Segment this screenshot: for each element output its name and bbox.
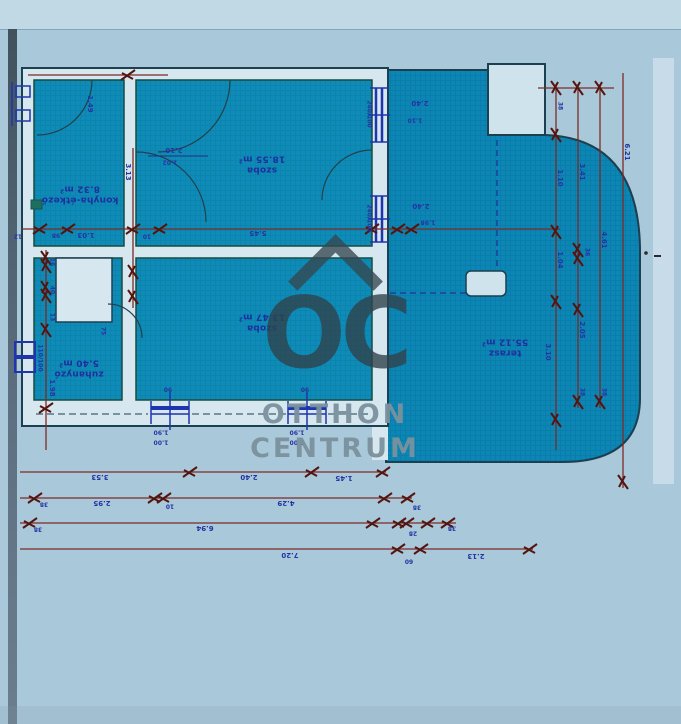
dimension-label: 4.61 (600, 231, 608, 248)
dimension-label: 2.40 (412, 202, 429, 210)
dimension-label: 1.00 (154, 439, 169, 446)
room-label-konyha-etkezo: konyha-étkező8.32 m² (42, 182, 119, 205)
dimension-label: 1.04 (556, 251, 564, 268)
dimension-label: 38 (601, 388, 608, 396)
dimension-label: 38 (413, 504, 421, 511)
dimension-label: 38 (579, 388, 586, 396)
dimension-label: 5.45 (249, 229, 266, 237)
dimension-label: 6.94 (196, 524, 213, 532)
dimension-label: 38 (557, 102, 564, 110)
watermark-brand-line1: OTTHON (250, 399, 420, 430)
dimension-label: 98 (52, 232, 60, 239)
dimension-label: 2.40 (411, 99, 428, 107)
dimension-label: 28 (409, 530, 417, 537)
dimension-label: 7.20 (281, 551, 298, 559)
dimension-label: 1.10 (556, 169, 564, 186)
dimension-label: 10 (143, 233, 151, 240)
dimension-label: 36 (584, 248, 591, 256)
dimension-label: 4.29 (277, 499, 294, 507)
dimension-label: 3.53 (91, 473, 108, 481)
dimension-label: 2.95 (93, 499, 110, 507)
dimension-label: 3.41 (578, 163, 586, 180)
dimension-label: 2.05 (578, 321, 586, 338)
dimension-label: 240/100 (366, 204, 373, 231)
dimension-label: 1.90 (154, 429, 169, 436)
dimension-label: 6.21 (623, 143, 631, 160)
dimension-label: 1.98 (421, 219, 436, 226)
dimension-label: 38 (34, 526, 42, 533)
dimension-label: 1.45 (335, 474, 352, 482)
dimension-label: 75 (100, 327, 107, 335)
dimension-label: 110/100 (37, 344, 44, 371)
dimension-label: 2.10 (165, 146, 182, 154)
dimension-label: 3.10 (544, 343, 552, 360)
dimension-label: 60 (405, 558, 413, 565)
watermark-brand-line2: CENTRUM (250, 433, 420, 464)
dimension-label: 2.13 (467, 552, 484, 560)
dimension-label: 3.13 (124, 163, 132, 180)
dimension-label: 1.02 (163, 159, 178, 166)
dimension-label: 38 (40, 501, 48, 508)
dimension-label: 1.98 (48, 379, 56, 396)
room-label-terasz: terasz55.12 m² (482, 335, 529, 358)
watermark: OC OTTHON CENTRUM (250, 248, 420, 464)
dimension-label: 16 (49, 258, 56, 266)
dimension-label: 2.40 (240, 473, 257, 481)
dimension-label: 1.49 (86, 95, 94, 112)
dimension-label: 1.10 (408, 117, 423, 124)
dimension-label: 38 (448, 525, 456, 532)
room-label-zuhanyzo: zuhanyzó5.40 m² (54, 356, 103, 379)
scanned-floor-plan-page: 2.101.023.131.4912981.03105.45164013751.… (0, 0, 681, 724)
dimension-label: 240/100 (366, 100, 373, 127)
dimension-label: 10 (166, 503, 174, 510)
dimension-label: 90 (164, 386, 172, 393)
dimension-label: 1.03 (77, 231, 94, 239)
dimension-label: 12 (14, 233, 22, 240)
room-label-szoba-felso: szoba18.55 m² (239, 152, 286, 175)
dimension-label: 13 (49, 313, 56, 321)
dimension-label: 40 (49, 286, 56, 294)
